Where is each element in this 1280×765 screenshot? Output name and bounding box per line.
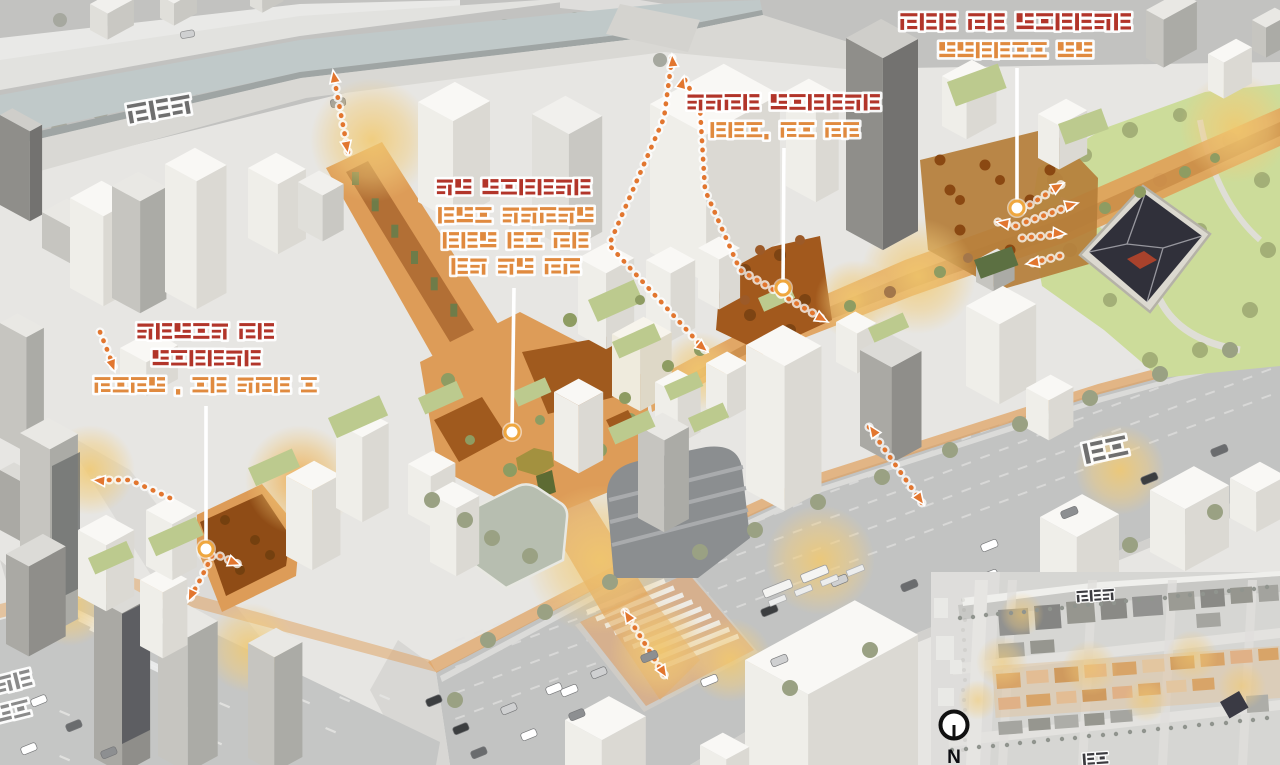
svg-text:N: N (947, 747, 961, 765)
